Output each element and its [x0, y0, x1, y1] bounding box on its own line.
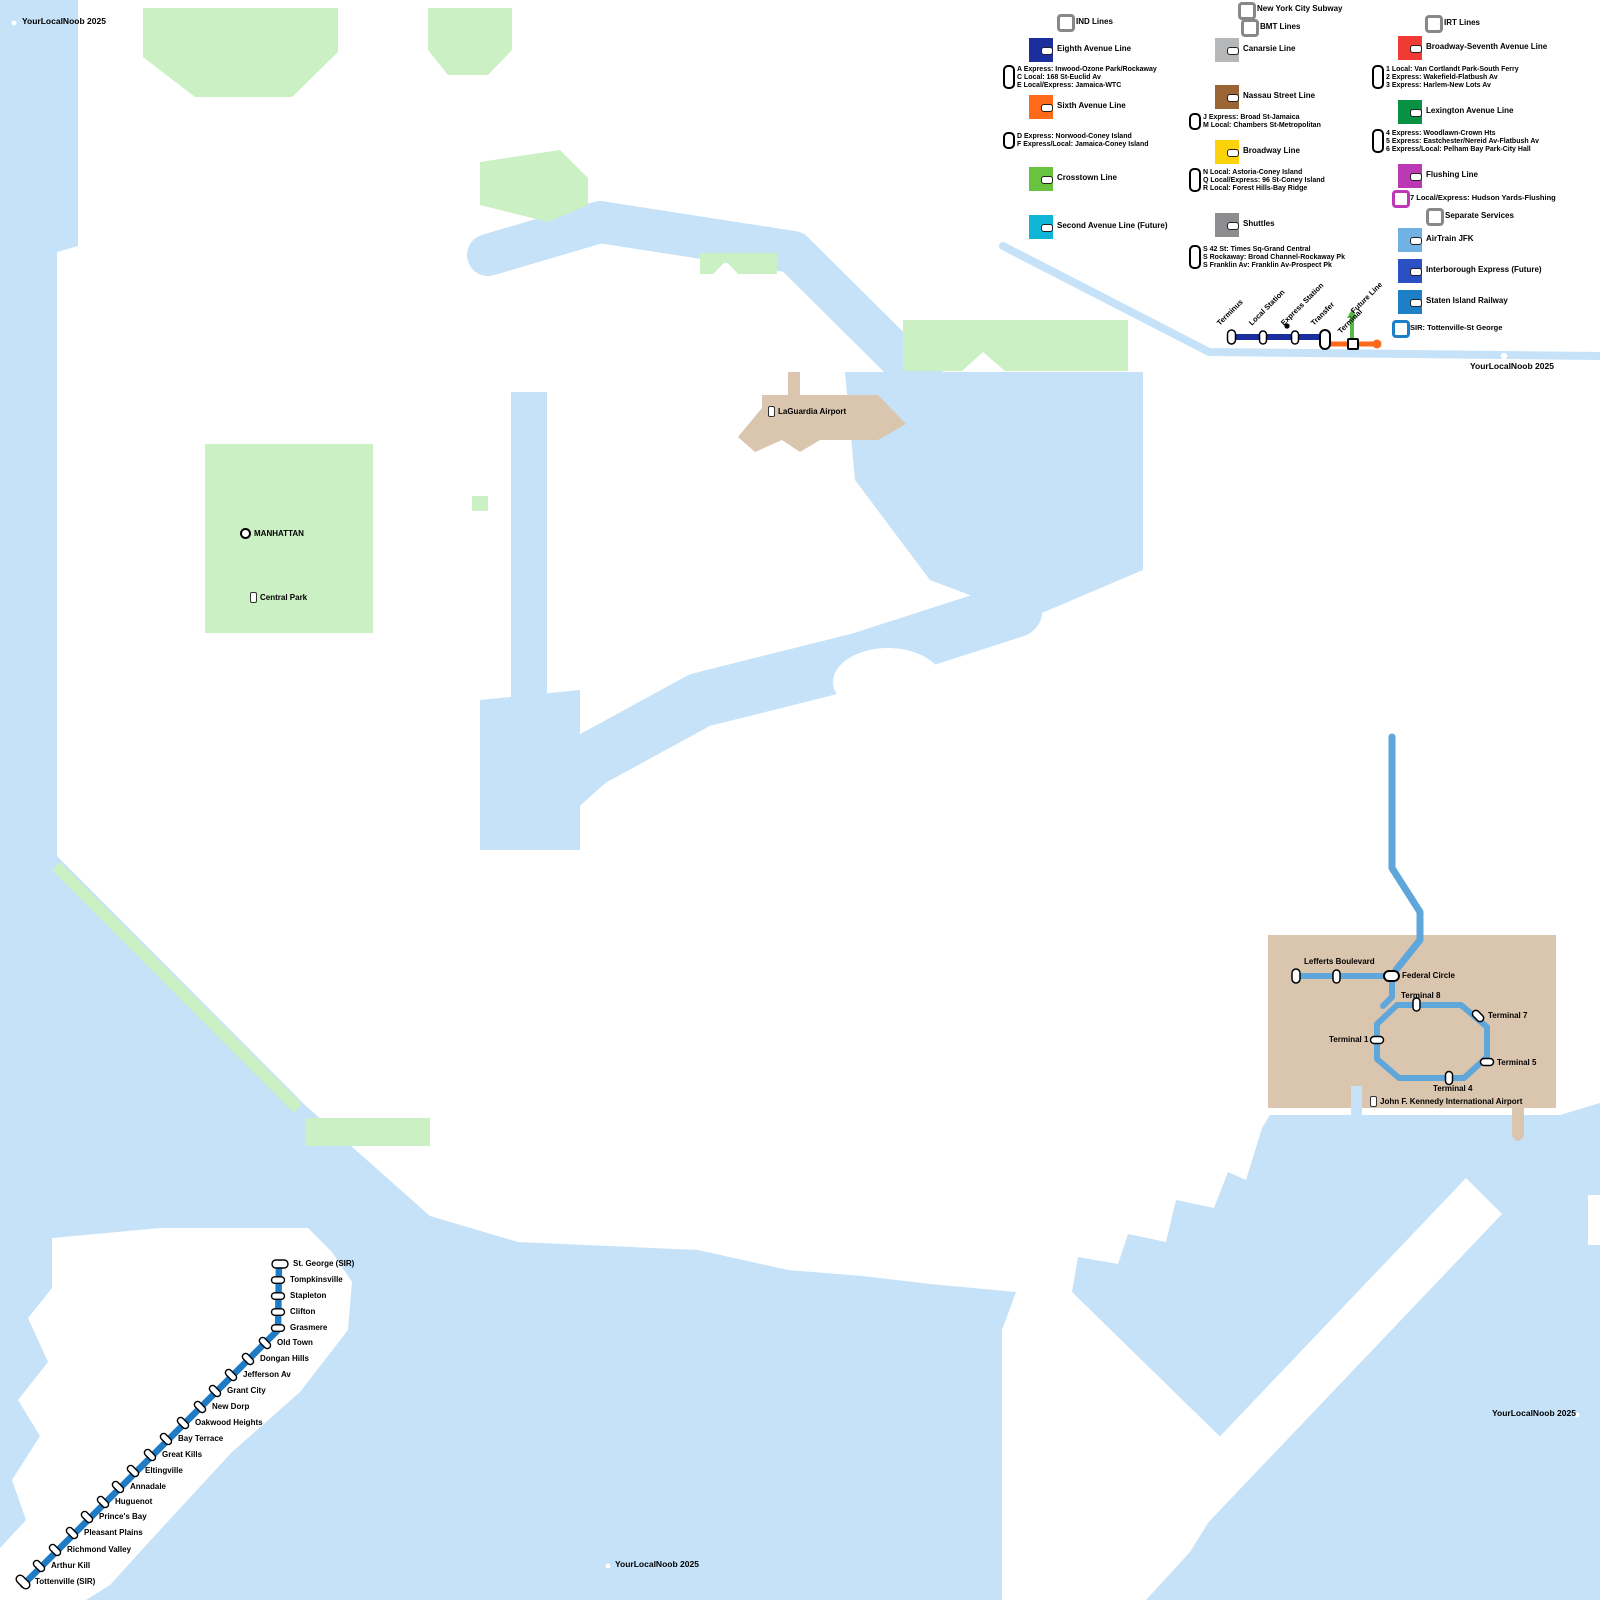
- service-r: R Local: Forest Hills-Bay Ridge: [1203, 185, 1307, 193]
- line-sample-icon: [1041, 104, 1053, 112]
- map-geography: [0, 0, 1600, 1600]
- legend-label-lexington: Lexington Avenue Line: [1426, 106, 1513, 116]
- station-marker-terminal-4: [1446, 1072, 1453, 1085]
- line-sample-icon: [1227, 47, 1239, 55]
- laguardia-label: LaGuardia Airport: [768, 406, 846, 417]
- sir-label-tottenville: Tottenville (SIR): [35, 1577, 95, 1587]
- sir-label-oakwood-heights: Oakwood Heights: [195, 1418, 263, 1428]
- service-4: 4 Express: Woodlawn-Crown Hts: [1386, 130, 1496, 138]
- bmt-header: BMT Lines: [1260, 22, 1300, 31]
- sir-label-pleasant-plains: Pleasant Plains: [84, 1528, 143, 1538]
- central-park-label: Central Park: [250, 592, 307, 603]
- sir-label-princes-bay: Prince's Bay: [99, 1512, 147, 1522]
- line-sample-icon: [1410, 109, 1422, 117]
- service-1: 1 Local: Van Cortlandt Park-South Ferry: [1386, 66, 1519, 74]
- station-marker-lefferts-local: [1333, 970, 1340, 983]
- sir-label-clifton: Clifton: [290, 1307, 315, 1317]
- service-sfrank: S Franklin Av: Franklin Av-Prospect Pk: [1203, 262, 1332, 270]
- sir-label-grant-city: Grant City: [227, 1386, 266, 1396]
- jfk-airport-label-text: John F. Kennedy International Airport: [1380, 1097, 1522, 1106]
- line-sample-icon: [1041, 224, 1053, 232]
- legend-title: New York City Subway: [1257, 4, 1343, 13]
- sir-label-new-dorp: New Dorp: [212, 1402, 249, 1412]
- legend-label-shuttles: Shuttles: [1243, 219, 1275, 229]
- watermark-dot-bottom-center: [606, 1564, 611, 1569]
- separate-services-header-icon: [1426, 208, 1444, 226]
- line-sample-icon: [1227, 94, 1239, 102]
- station-marker-terminal-1: [1371, 1037, 1384, 1044]
- park-shore-strip-small: [700, 253, 777, 274]
- line-sample-icon: [1227, 222, 1239, 230]
- line-sample-icon: [1041, 47, 1053, 55]
- key-local-marker: [1260, 331, 1267, 344]
- service-5: 5 Express: Eastchester/Nereid Av-Flatbus…: [1386, 138, 1539, 146]
- station-marker-terminal-5: [1481, 1059, 1494, 1066]
- swatch-interborough: [1398, 259, 1422, 283]
- service-6: 6 Express/Local: Pelham Bay Park-City Ha…: [1386, 146, 1531, 154]
- line-sample-icon: [1410, 268, 1422, 276]
- nyc-subway-map: YourLocalNoob 2025 YourLocalNoob 2025 Yo…: [0, 0, 1600, 1600]
- sir-label-eltingville: Eltingville: [145, 1466, 183, 1476]
- line-sample-icon: [1410, 45, 1422, 53]
- service-srock: S Rockaway: Broad Channel-Rockaway Pk: [1203, 254, 1345, 262]
- watermark-bottom-right: YourLocalNoob 2025: [1492, 1408, 1576, 1418]
- service-pill-jm-icon: [1189, 113, 1201, 130]
- airtrain-label-terminal-8: Terminal 8: [1401, 991, 1440, 1001]
- legend-label-airtrain-jfk: AirTrain JFK: [1426, 234, 1474, 244]
- legend-label-broadway: Broadway Line: [1243, 146, 1300, 156]
- swatch-shuttles: [1215, 213, 1239, 237]
- service-ring-sir-icon: [1392, 320, 1410, 338]
- sir-label-great-kills: Great Kills: [162, 1450, 202, 1460]
- service-c: C Local: 168 St-Euclid Av: [1017, 74, 1101, 82]
- swatch-airtrain-jfk: [1398, 228, 1422, 252]
- service-a: A Express: Inwood-Ozone Park/Rockaway: [1017, 66, 1157, 74]
- manhattan-label: MANHATTAN: [240, 528, 304, 539]
- sir-label-annadale: Annadale: [130, 1482, 166, 1492]
- key-terminus-dot-orange: [1373, 340, 1382, 349]
- watermark-top-left: YourLocalNoob 2025: [22, 16, 106, 26]
- sir-label-st-george: St. George (SIR): [293, 1259, 354, 1269]
- shoreline-dot: [1501, 353, 1507, 359]
- service-d: D Express: Norwood-Coney Island: [1017, 133, 1132, 141]
- park-shore-strip-long: [903, 320, 1128, 371]
- legend-label-broadway-seventh: Broadway-Seventh Avenue Line: [1426, 42, 1547, 52]
- service-pill-456-icon: [1372, 129, 1384, 153]
- swatch-second-avenue: [1029, 215, 1053, 239]
- service-3: 3 Express: Harlem-New Lots Av: [1386, 82, 1491, 90]
- service-7: 7 Local/Express: Hudson Yards-Flushing: [1410, 194, 1556, 202]
- line-sample-icon: [1410, 173, 1422, 181]
- service-j: J Express: Broad St-Jamaica: [1203, 114, 1300, 122]
- service-2: 2 Express: Wakefield-Flatbush Av: [1386, 74, 1498, 82]
- sir-label-tompkinsville: Tompkinsville: [290, 1275, 343, 1285]
- legend-label-interborough: Interborough Express (Future): [1426, 265, 1542, 275]
- sir-label-arthur-kill: Arthur Kill: [51, 1561, 90, 1571]
- jfk-bergen-basin-inlet: [1351, 1086, 1362, 1118]
- legend-label-nassau: Nassau Street Line: [1243, 91, 1315, 101]
- service-s42: S 42 St: Times Sq-Grand Central: [1203, 246, 1311, 254]
- station-marker-lefferts-terminus: [1292, 969, 1300, 983]
- airtrain-label-terminal-5: Terminal 5: [1497, 1058, 1536, 1068]
- airport-glyph-icon: [1370, 1096, 1377, 1107]
- swatch-nassau: [1215, 85, 1239, 109]
- central-park-label-text: Central Park: [260, 593, 307, 602]
- ind-header-icon: [1057, 14, 1075, 32]
- subway-badge-icon: [1238, 2, 1256, 20]
- sir-label-grasmere: Grasmere: [290, 1323, 327, 1333]
- service-ring-7-icon: [1392, 190, 1410, 208]
- airport-glyph-icon: [768, 406, 775, 417]
- watermark-bottom-center: YourLocalNoob 2025: [615, 1559, 699, 1569]
- legend-label-eighth-avenue: Eighth Avenue Line: [1057, 44, 1131, 54]
- service-q: Q Local/Express: 96 St-Coney Island: [1203, 177, 1325, 185]
- sir-label-stapleton: Stapleton: [290, 1291, 326, 1301]
- service-pill-nqr-icon: [1189, 168, 1201, 192]
- bmt-header-icon: [1241, 19, 1259, 37]
- line-sample-icon: [1410, 299, 1422, 307]
- legend-label-second-avenue: Second Avenue Line (Future): [1057, 221, 1168, 231]
- airtrain-label-terminal-4: Terminal 4: [1433, 1084, 1472, 1094]
- park-tiny: [472, 496, 488, 511]
- sir-label-bay-terrace: Bay Terrace: [178, 1434, 223, 1444]
- station-marker-clifton: [272, 1309, 285, 1316]
- swatch-flushing: [1398, 164, 1422, 188]
- service-sir: SIR: Tottenville-St George: [1410, 324, 1502, 332]
- swatch-lexington: [1398, 100, 1422, 124]
- park-glyph-icon: [250, 592, 257, 603]
- swatch-broadway-seventh: [1398, 36, 1422, 60]
- irt-header: IRT Lines: [1444, 18, 1480, 27]
- sir-label-richmond-valley: Richmond Valley: [67, 1545, 131, 1555]
- service-f: F Express/Local: Jamaica-Coney Island: [1017, 141, 1149, 149]
- station-marker-federal-circle: [1384, 971, 1399, 981]
- service-pill-df-icon: [1003, 132, 1015, 149]
- service-m: M Local: Chambers St-Metropolitan: [1203, 122, 1321, 130]
- land-islet-east: [1588, 1195, 1600, 1245]
- borough-dot-icon: [240, 528, 251, 539]
- irt-header-icon: [1425, 15, 1443, 33]
- legend-label-canarsie: Canarsie Line: [1243, 44, 1295, 54]
- swatch-canarsie: [1215, 38, 1239, 62]
- sir-label-old-town: Old Town: [277, 1338, 313, 1348]
- key-express-marker: [1292, 331, 1299, 344]
- legend-label-crosstown: Crosstown Line: [1057, 173, 1117, 183]
- legend-label-flushing: Flushing Line: [1426, 170, 1478, 180]
- sir-label-huguenot: Huguenot: [115, 1497, 152, 1507]
- swatch-broadway: [1215, 140, 1239, 164]
- ind-header: IND Lines: [1076, 17, 1113, 26]
- sir-label-jefferson-av: Jefferson Av: [243, 1370, 291, 1380]
- key-terminal-marker: [1348, 339, 1358, 349]
- airtrain-label-terminal-1: Terminal 1: [1329, 1035, 1368, 1045]
- line-sample-icon: [1410, 237, 1422, 245]
- swatch-eighth-avenue: [1029, 38, 1053, 62]
- island-rikers: [833, 648, 943, 716]
- swatch-staten-island-railway: [1398, 290, 1422, 314]
- line-sample-icon: [1227, 149, 1239, 157]
- jfk-airport-label: John F. Kennedy International Airport: [1370, 1096, 1522, 1107]
- station-marker-tompkinsville: [272, 1277, 285, 1284]
- sir-label-dongan-hills: Dongan Hills: [260, 1354, 309, 1364]
- park-coast-strip-flat: [305, 1118, 430, 1146]
- airtrain-label-lefferts: Lefferts Boulevard: [1304, 957, 1375, 967]
- service-pill-s-icon: [1189, 245, 1201, 269]
- station-marker-st-george: [272, 1260, 288, 1268]
- service-pill-ace-icon: [1003, 65, 1015, 89]
- legend-label-staten-island-railway: Staten Island Railway: [1426, 296, 1508, 306]
- watermark-legend-area: YourLocalNoob 2025: [1470, 361, 1554, 371]
- station-marker-stapleton: [272, 1293, 285, 1300]
- service-n: N Local: Astoria-Coney Island: [1203, 169, 1302, 177]
- separate-services-header: Separate Services: [1445, 211, 1514, 220]
- manhattan-label-text: MANHATTAN: [254, 529, 304, 538]
- key-terminus-marker: [1228, 330, 1236, 344]
- service-e: E Local/Express: Jamaica-WTC: [1017, 82, 1121, 90]
- airtrain-label-terminal-7: Terminal 7: [1488, 1011, 1527, 1021]
- line-sample-icon: [1041, 176, 1053, 184]
- swatch-crosstown: [1029, 167, 1053, 191]
- airtrain-label-federal-circle: Federal Circle: [1402, 971, 1455, 981]
- watermark-dot-top-left: [12, 21, 17, 26]
- laguardia-label-text: LaGuardia Airport: [778, 407, 846, 416]
- legend-label-sixth-avenue: Sixth Avenue Line: [1057, 101, 1126, 111]
- swatch-sixth-avenue: [1029, 95, 1053, 119]
- service-pill-123-icon: [1372, 65, 1384, 89]
- key-transfer-marker: [1320, 330, 1330, 349]
- station-marker-grasmere: [272, 1325, 285, 1332]
- river-mouth: [480, 690, 580, 850]
